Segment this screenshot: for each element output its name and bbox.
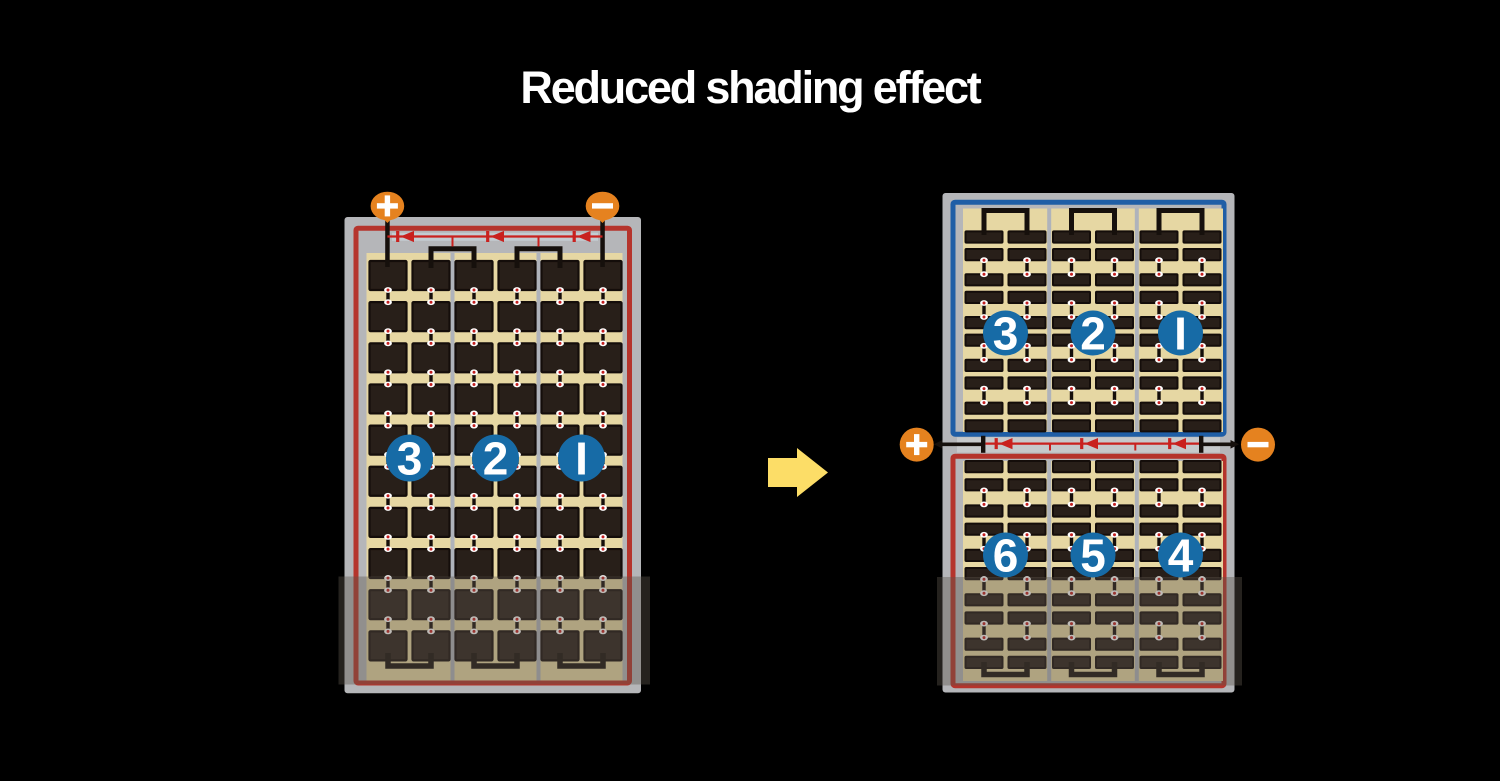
- svg-text:I: I: [575, 433, 588, 485]
- svg-text:3: 3: [993, 308, 1019, 360]
- svg-text:I: I: [1174, 308, 1187, 360]
- svg-text:5: 5: [1080, 530, 1106, 582]
- svg-text:3: 3: [397, 433, 423, 485]
- svg-text:2: 2: [483, 433, 509, 485]
- svg-text:4: 4: [1168, 530, 1194, 582]
- svg-text:6: 6: [993, 530, 1019, 582]
- svg-text:2: 2: [1080, 308, 1106, 360]
